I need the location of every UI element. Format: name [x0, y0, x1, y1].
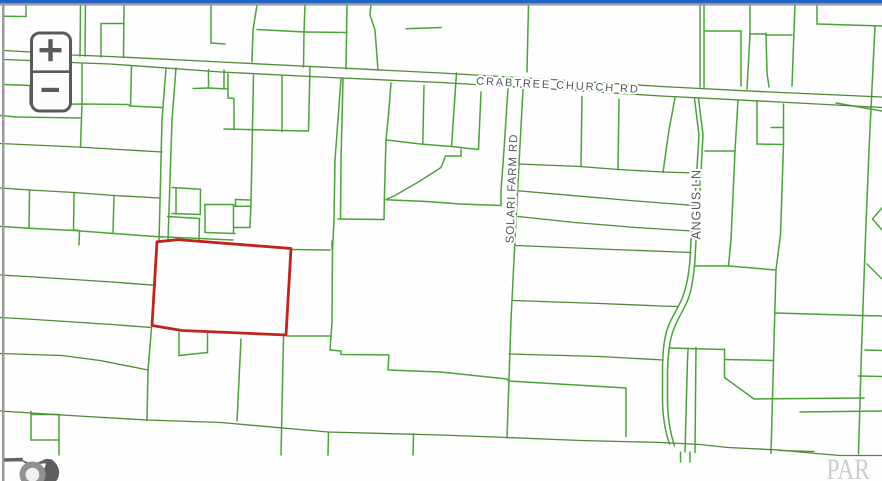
svg-text:ANGUS LN: ANGUS LN: [690, 169, 704, 239]
svg-text:PAR: PAR: [827, 452, 870, 481]
